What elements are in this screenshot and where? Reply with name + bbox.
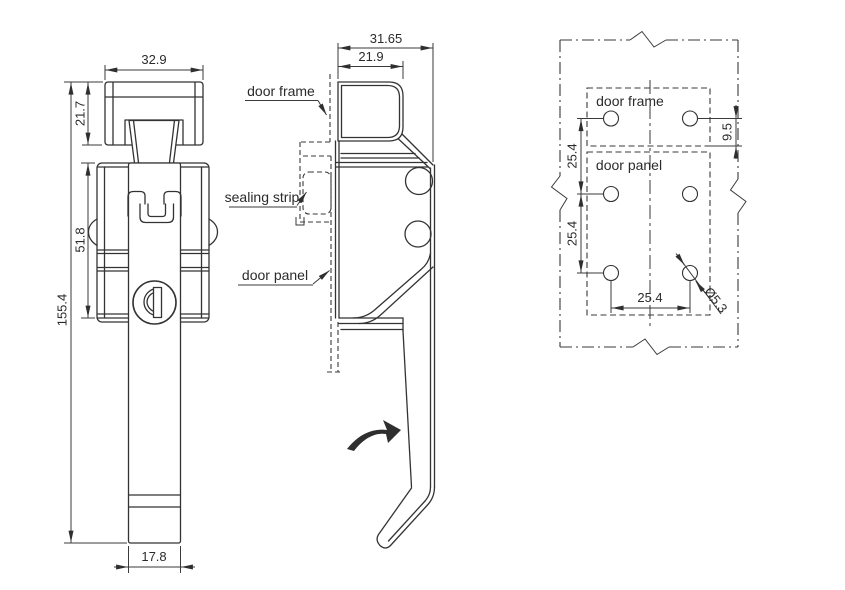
mounting-hole	[604, 266, 619, 281]
side-hidden-lines	[296, 74, 341, 372]
frame-hook-channel	[338, 82, 403, 141]
side-labels: door frame sealing strip door panel	[225, 83, 330, 285]
keyhole	[154, 288, 162, 318]
rotation-arrow	[347, 420, 401, 451]
handle-arm-edge	[403, 331, 412, 487]
technical-drawing-page: 32.9 21.7 51.8 155.4	[0, 0, 845, 590]
side-view: 31.65 21.9 door frame sealing strip door…	[225, 31, 435, 548]
dim-total-height: 155.4	[55, 294, 70, 327]
front-part	[89, 82, 218, 543]
dim-hole-diameter: Ø5.3	[701, 284, 730, 315]
sealing-strip-section	[303, 172, 331, 214]
label-door-panel-region: door panel	[596, 157, 662, 173]
front-view: 32.9 21.7 51.8 155.4	[55, 52, 218, 573]
lock-cylinder	[133, 281, 176, 324]
mounting-hole	[683, 111, 698, 126]
label-door-panel: door panel	[242, 267, 308, 283]
dim-body-height: 51.8	[73, 227, 88, 252]
dim-cap-width: 32.9	[141, 52, 166, 67]
side-part	[336, 82, 435, 548]
pivot-ear-left	[89, 219, 98, 246]
mounting-labels: door frame door panel	[596, 93, 664, 173]
handle-arm-tip	[377, 487, 434, 548]
dim-handle-width: 17.8	[141, 549, 166, 564]
latch-technical-drawing: 32.9 21.7 51.8 155.4	[0, 0, 845, 590]
pivot-ear-right	[209, 219, 218, 246]
dim-frame-hole-offset: 9.5	[720, 123, 735, 141]
label-door-frame-region: door frame	[596, 93, 664, 109]
mounting-dimensions: 25.4 25.4 9.5 25.4 Ø5.3	[565, 105, 743, 316]
dim-total-depth: 31.65	[370, 31, 403, 46]
rivet-bottom	[405, 221, 431, 247]
mounting-hole	[683, 187, 698, 202]
label-door-frame: door frame	[247, 83, 315, 99]
rivet-top	[406, 168, 433, 195]
dim-cap-height: 21.7	[73, 101, 88, 126]
mounting-hole	[604, 111, 619, 126]
dim-horizontal-pitch: 25.4	[637, 290, 662, 305]
dim-vertical-pitch-lower: 25.4	[565, 221, 580, 246]
mounting-hole	[604, 187, 619, 202]
mounting-view: 25.4 25.4 9.5 25.4 Ø5.3 door frame door …	[552, 32, 747, 355]
dim-vertical-pitch-upper: 25.4	[565, 143, 580, 168]
label-sealing-strip: sealing strip	[225, 189, 300, 205]
dim-channel-depth: 21.9	[358, 49, 383, 64]
